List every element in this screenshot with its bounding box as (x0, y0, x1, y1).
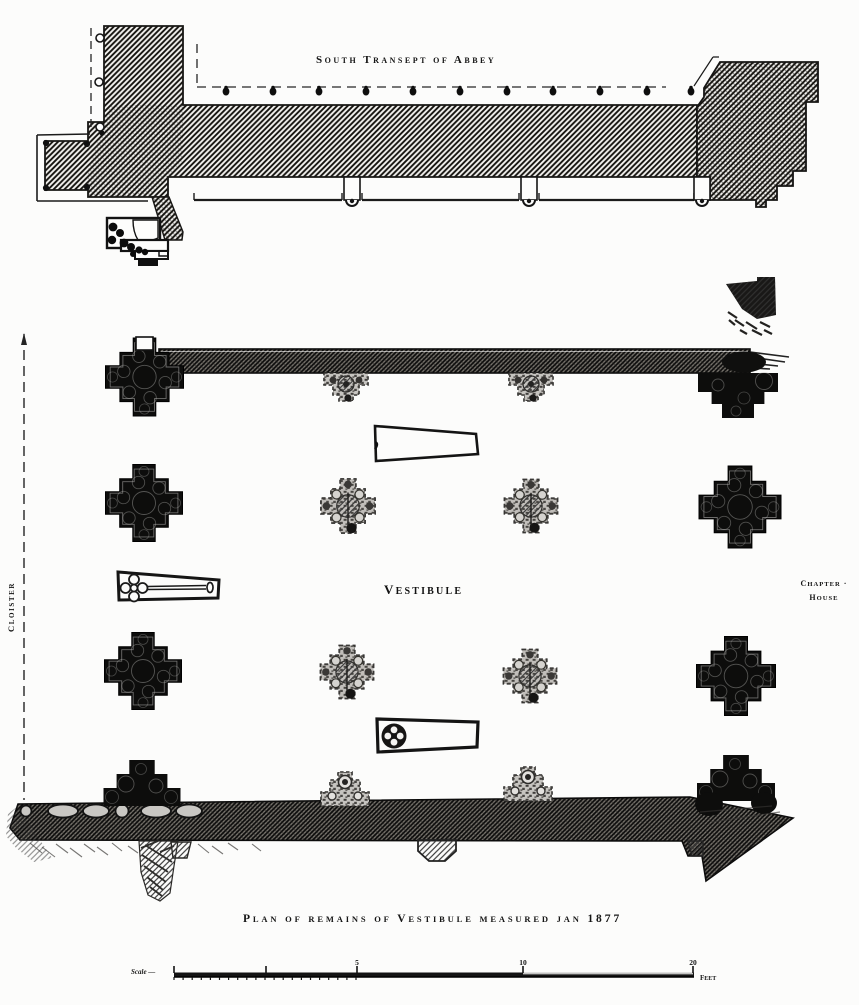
svg-text:FEET: FEET (700, 974, 716, 982)
svg-text:Scale —: Scale — (131, 968, 155, 976)
svg-text:CHAPTER ·: CHAPTER · (801, 579, 848, 588)
svg-text:CLOISTER: CLOISTER (6, 582, 16, 632)
svg-text:5: 5 (355, 958, 359, 967)
svg-text:HOUSE: HOUSE (809, 593, 838, 602)
svg-text:PLAN OF REMAINS OF VESTIBU: PLAN OF REMAINS OF VESTIBULE MEASURED JA… (243, 911, 622, 925)
svg-text:10: 10 (519, 958, 527, 967)
svg-text:20: 20 (689, 958, 697, 967)
svg-text:SOUTH TRANSEPT OF ABBEY: SOUTH TRANSEPT OF ABBEY (316, 54, 496, 66)
